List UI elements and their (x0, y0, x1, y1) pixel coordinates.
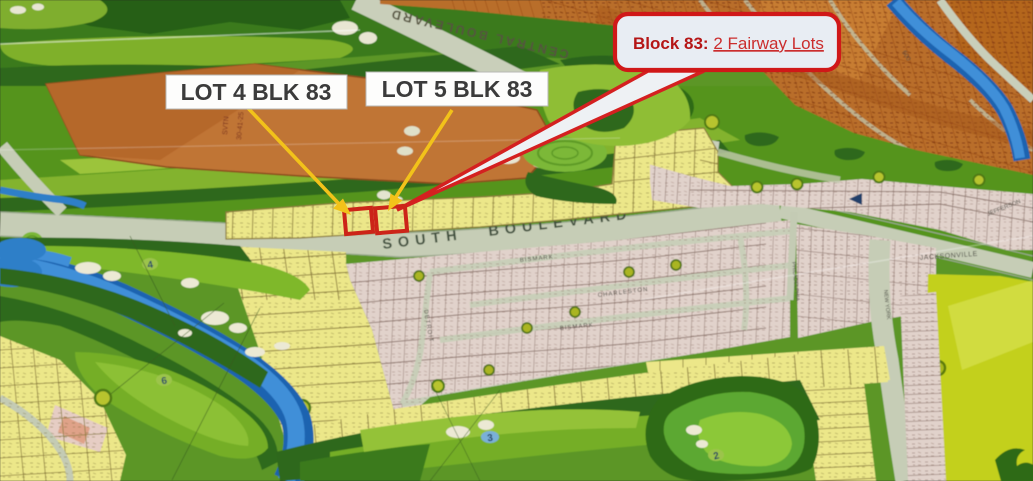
svg-text:LOT 4 BLK 83: LOT 4 BLK 83 (181, 79, 332, 105)
svg-text:LOT 5 BLK 83: LOT 5 BLK 83 (382, 76, 533, 102)
svg-text:Block 83: 2 Fairway Lots: Block 83: 2 Fairway Lots (633, 34, 824, 53)
